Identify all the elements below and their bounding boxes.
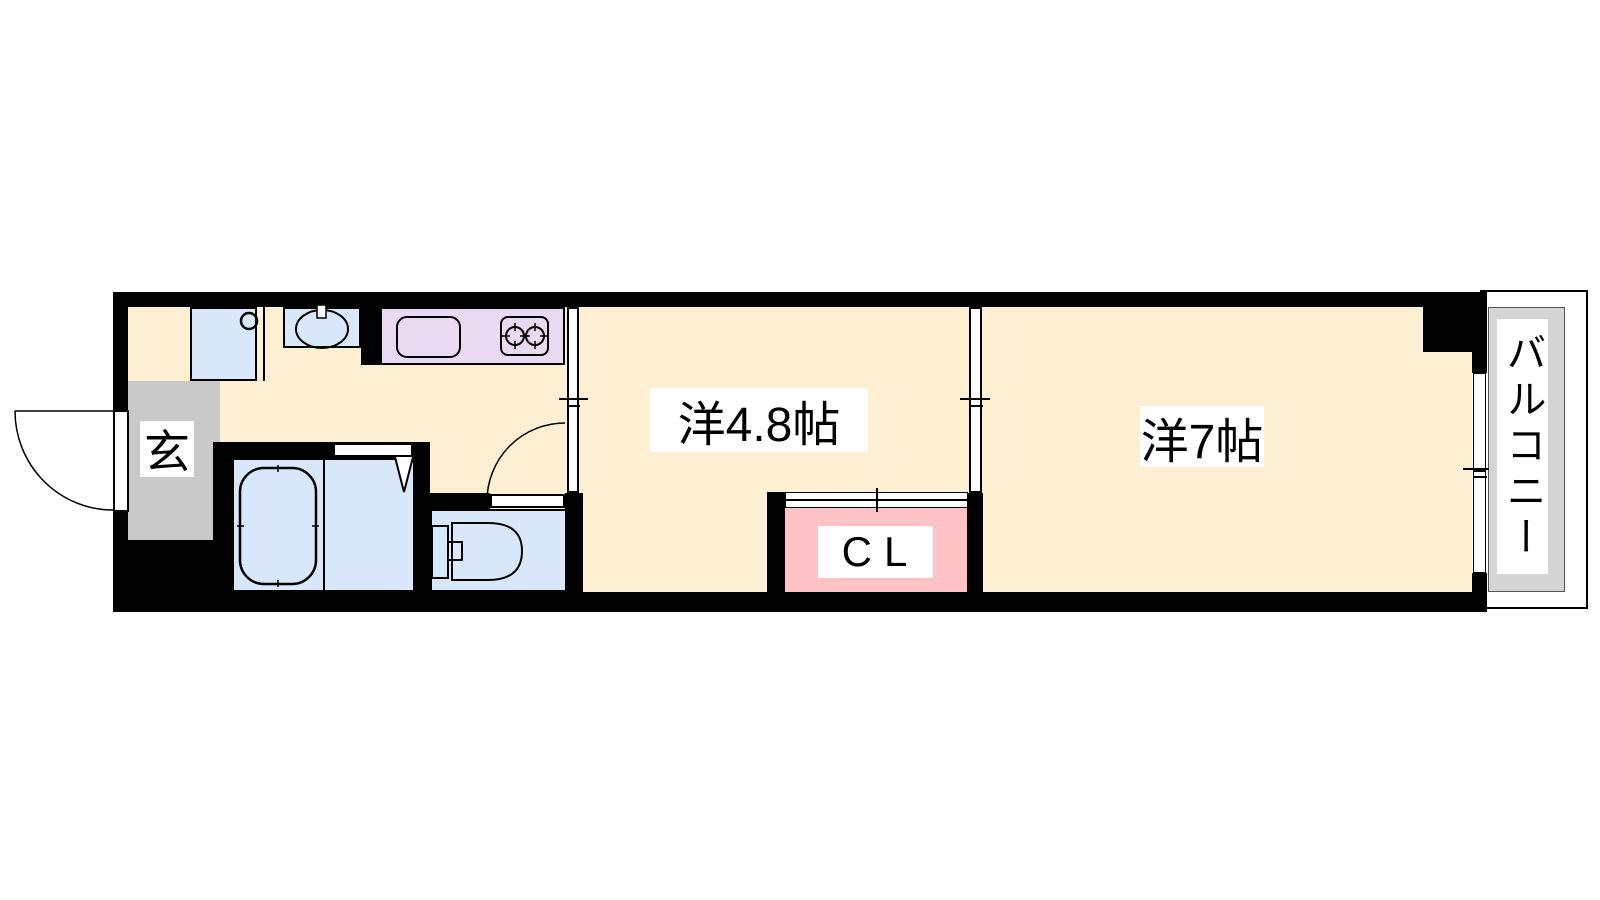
washbasin-counter xyxy=(283,307,361,348)
wall-bottom xyxy=(113,592,1483,612)
floor-plan: 玄 洋4.8帖 洋7帖 CL バルコニー xyxy=(0,0,1600,900)
folding-bath-door xyxy=(333,443,413,457)
kitchen-counter xyxy=(380,307,565,365)
bathroom-floor xyxy=(232,458,415,592)
closet-slider-pane-2 xyxy=(785,500,968,508)
wall-bath-toilet xyxy=(415,442,430,592)
room2-label: 洋7帖 xyxy=(1140,406,1264,467)
balcony-window-pane-1 xyxy=(1473,373,1486,471)
toilet-floor xyxy=(430,509,568,592)
partition-room1-room2 xyxy=(969,307,982,493)
wall-closet-left xyxy=(767,492,785,592)
room1-label: 洋4.8帖 xyxy=(650,388,868,452)
wall-toilet-right xyxy=(565,493,583,592)
balcony-label: バルコニー xyxy=(1497,319,1548,574)
wall-bath-left xyxy=(213,442,232,592)
closet-slider-pane-1 xyxy=(785,492,968,500)
wall-top xyxy=(113,292,1487,307)
washer-pan xyxy=(190,307,257,381)
wall-toilet-top xyxy=(420,493,490,509)
genkan-label: 玄 xyxy=(140,421,194,477)
partition-hall-room1 xyxy=(567,307,579,493)
entry-door-leaf xyxy=(113,410,129,512)
balcony-window-pane-2 xyxy=(1473,471,1486,573)
wall-closet-right xyxy=(967,493,983,592)
wall-kitchen-stub xyxy=(361,307,380,365)
closet-label: CL xyxy=(818,526,933,578)
wall-top-right-stub xyxy=(1472,352,1487,373)
toilet-door-leaf xyxy=(490,494,565,508)
wall-bottom-right-stub xyxy=(1472,573,1487,612)
entry-door-swing-arc xyxy=(15,411,113,510)
wall-top-right-block xyxy=(1423,307,1487,352)
